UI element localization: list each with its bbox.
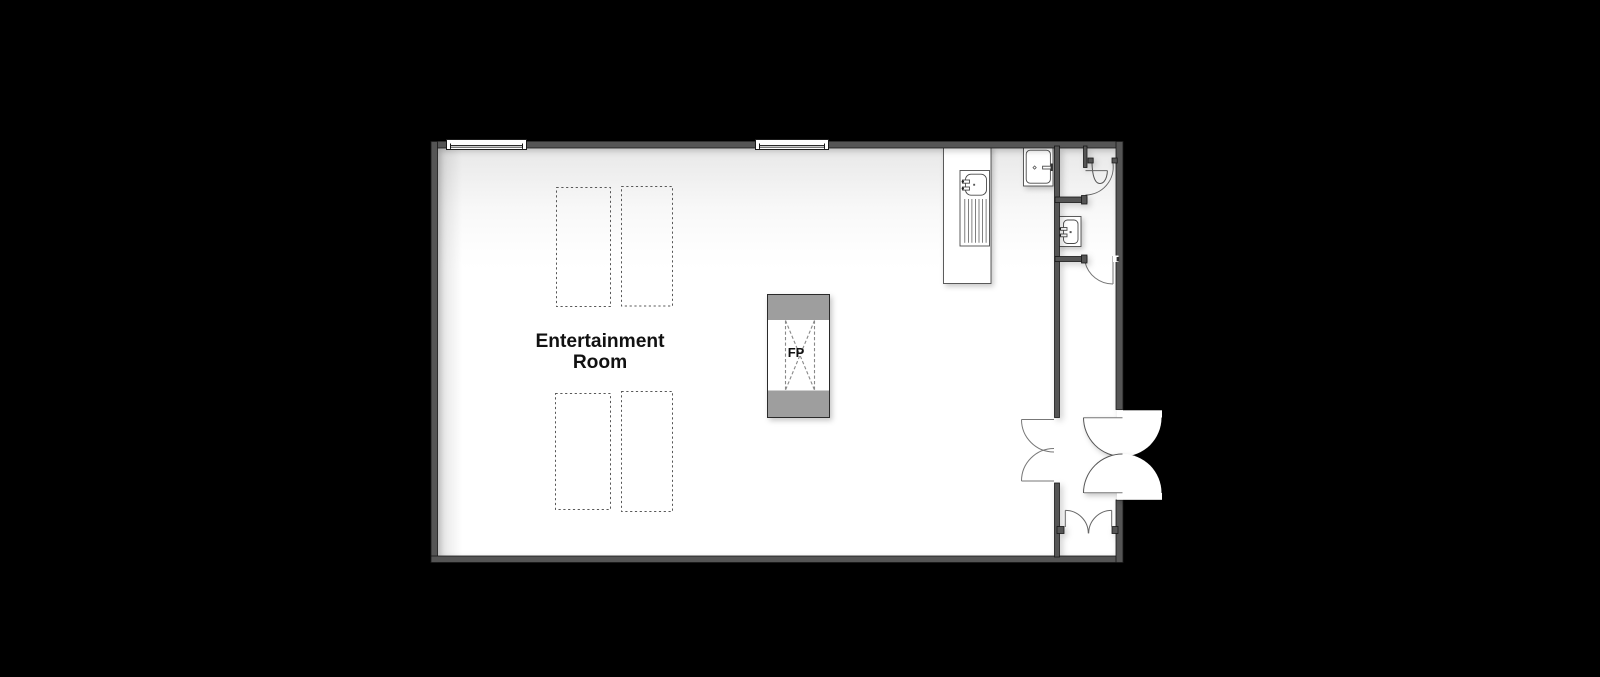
svg-text:FP: FP bbox=[788, 345, 805, 360]
svg-text:Entertainment: Entertainment bbox=[535, 331, 665, 352]
svg-text:Room: Room bbox=[573, 352, 627, 373]
